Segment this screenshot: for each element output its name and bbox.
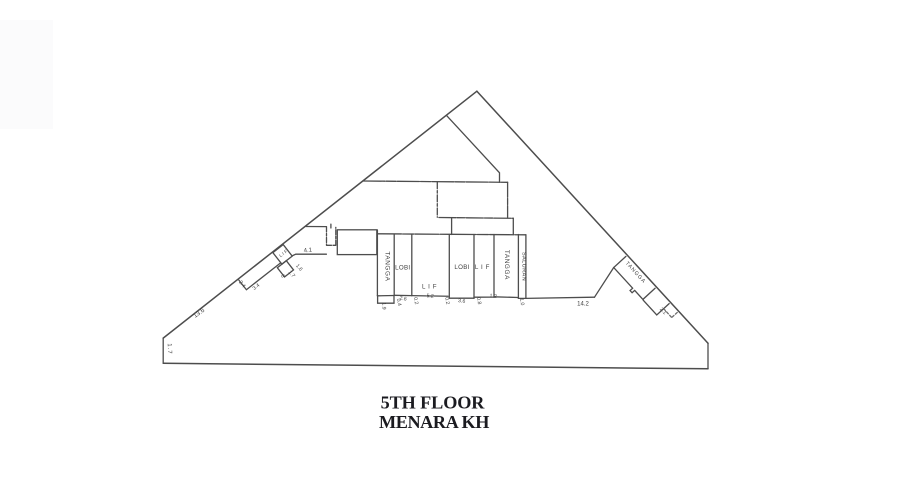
svg-text:3.6: 3.6 <box>458 298 466 305</box>
svg-text:1.9: 1.9 <box>380 302 386 310</box>
svg-text:2.1: 2.1 <box>658 307 667 316</box>
svg-text:14.2: 14.2 <box>577 302 589 308</box>
svg-text:0.2: 0.2 <box>443 297 450 305</box>
svg-text:L I F: L I F <box>422 284 437 291</box>
svg-text:5.2: 5.2 <box>426 293 434 300</box>
svg-text:TANGGA: TANGGA <box>384 251 391 281</box>
svg-text:0.8: 0.8 <box>475 297 482 305</box>
svg-text:0.2: 0.2 <box>412 297 419 305</box>
svg-text:SALURAN: SALURAN <box>520 252 526 281</box>
svg-text:LOBI: LOBI <box>454 264 469 271</box>
svg-text:4.1: 4.1 <box>303 248 313 255</box>
svg-text:1.7: 1.7 <box>166 343 172 355</box>
svg-text:TANGGA: TANGGA <box>503 250 510 280</box>
svg-text:LOBI: LOBI <box>395 264 410 271</box>
svg-text:1.0: 1.0 <box>518 298 525 306</box>
svg-text:13.6: 13.6 <box>192 307 206 320</box>
svg-text:1.6: 1.6 <box>294 263 303 272</box>
svg-text:MENARA KH: MENARA KH <box>379 412 489 432</box>
svg-text:L I F: L I F <box>475 264 490 271</box>
svg-text:5TH FLOOR: 5TH FLOOR <box>381 392 486 412</box>
svg-text:1.2: 1.2 <box>489 293 497 300</box>
svg-text:1.7: 1.7 <box>287 270 296 279</box>
